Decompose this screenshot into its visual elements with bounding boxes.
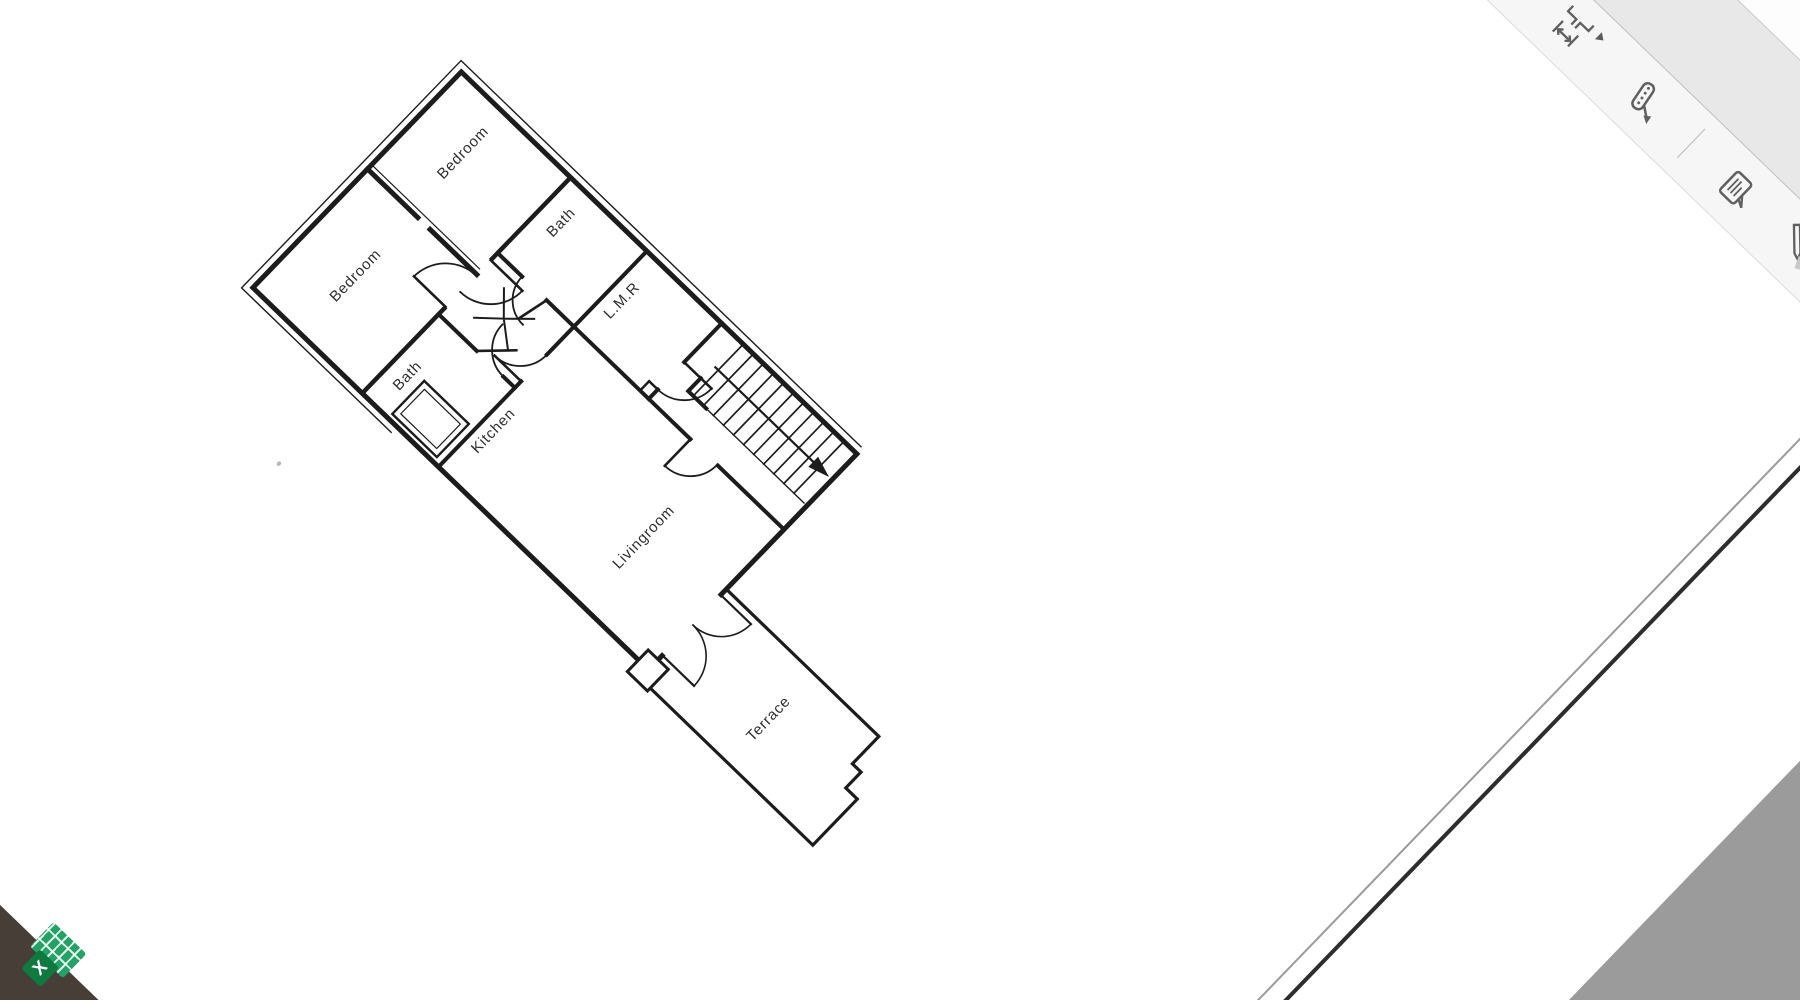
room-label-terrace: Terrace — [743, 693, 794, 745]
room-label-bath-left: Bath — [390, 358, 426, 394]
stair-left-line — [706, 408, 804, 502]
door-leaf-bedroom-left — [414, 276, 446, 307]
door-leaf-bedroom-right — [491, 260, 523, 291]
pen-highlighter-button[interactable] — [1765, 215, 1800, 279]
dimension-tool-button[interactable] — [1541, 0, 1605, 62]
comment-note-icon — [1710, 162, 1764, 216]
dimension-tool-icon — [1545, 3, 1599, 57]
room-label-lmr: L.M.R — [601, 279, 644, 322]
floor-plan-drawing: Bedroom Bedroom Bath Bath L.M.R Kitchen … — [232, 51, 1058, 865]
door-arc-kitchen — [495, 329, 547, 381]
livingroom-door-arc — [665, 439, 717, 491]
terrace-door-arc-left — [663, 625, 724, 686]
pen-highlighter-icon — [1769, 219, 1800, 273]
measure-distance-icon — [1620, 75, 1674, 129]
room-label-bedroom-left: Bedroom — [326, 246, 384, 306]
room-label-livingroom: Livingroom — [609, 502, 678, 572]
livingroom-door-leaf — [665, 439, 691, 466]
scan-speck — [276, 460, 282, 466]
pdf-page: Bedroom Bedroom Bath Bath L.M.R Kitchen … — [0, 0, 1800, 1000]
lmr-left-wall — [574, 327, 649, 399]
measure-distance-button[interactable] — [1616, 71, 1680, 135]
screen: Bedroom Bedroom Bath Bath L.M.R Kitchen … — [0, 0, 1800, 1000]
outer-wall — [253, 72, 857, 670]
room-label-bedroom-right: Bedroom — [434, 123, 492, 183]
hall-right-wall — [498, 253, 574, 327]
bedroom-divider-offset-line — [373, 166, 479, 269]
terrace-door-gap — [659, 592, 725, 659]
toolbar-separator — [1677, 129, 1706, 158]
room-label-bath-right: Bath — [543, 204, 579, 240]
bedroom-divider-wall — [368, 169, 477, 275]
lmr-door-leaf — [684, 362, 711, 388]
comment-note-button[interactable] — [1707, 158, 1771, 222]
door-star-spokes — [474, 288, 536, 350]
door-leaf-kitchen — [495, 356, 522, 382]
